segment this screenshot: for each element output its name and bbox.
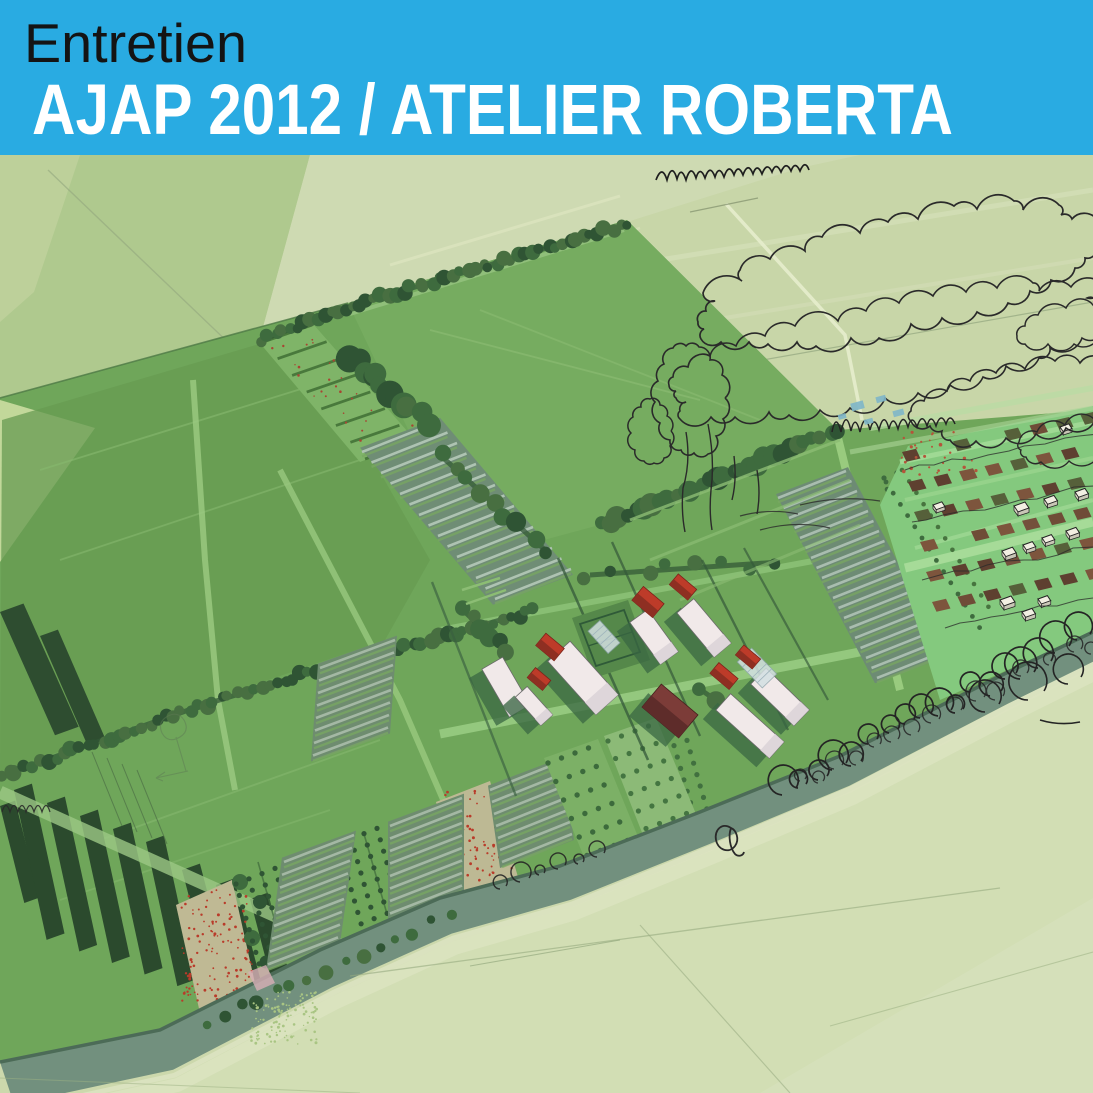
svg-text:Entretien: Entretien <box>24 12 247 74</box>
svg-text:AJAP 2012 / ATELIER ROBERTA: AJAP 2012 / ATELIER ROBERTA <box>32 71 953 150</box>
